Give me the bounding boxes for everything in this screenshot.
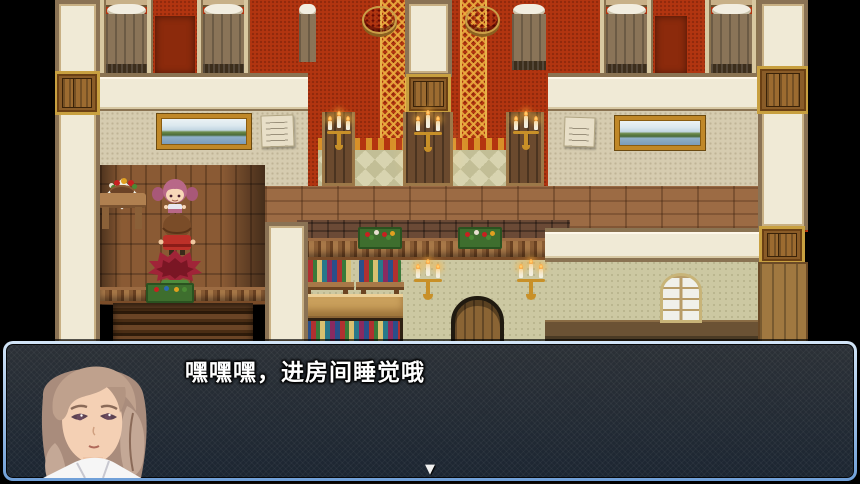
staircase (113, 303, 253, 346)
wall-trim-band (548, 73, 760, 113)
flower-box (458, 227, 502, 249)
flower-table (96, 181, 148, 231)
landscape-painting (157, 114, 251, 149)
center-column-panel (405, 0, 452, 77)
flower-box (146, 283, 194, 303)
dialogue-text: 嘿嘿嘿，进房间睡觉哦 (185, 353, 425, 387)
wall-bookshelf (356, 258, 404, 296)
curtain (106, 14, 147, 65)
arched-door (451, 296, 504, 346)
dialogue-window: 嘿嘿嘿，进房间睡觉哦 ▼ (6, 344, 854, 478)
red-wall-shadow (655, 16, 687, 74)
stairwell-shadow (222, 165, 265, 305)
continue-arrow-icon[interactable]: ▼ (6, 463, 854, 476)
inner-column (265, 222, 308, 346)
wall-sconce (515, 261, 547, 301)
books-row (359, 260, 401, 282)
brick-ledge (297, 220, 570, 238)
left-column (55, 0, 100, 346)
character-pink-haired-girl (150, 176, 200, 218)
round-red-table (362, 6, 397, 34)
balustrade (297, 238, 570, 260)
flower-box (358, 227, 402, 249)
red-wall-shadow (155, 16, 195, 74)
speaker-portrait (15, 351, 168, 478)
curtained-alcove-partial (506, 0, 552, 72)
books-row (306, 321, 400, 341)
shutter-window (54, 71, 100, 115)
right-column-lower (758, 262, 808, 346)
right-column (758, 0, 808, 230)
wall-sconce (413, 261, 443, 301)
candelabra (414, 113, 442, 153)
curtained-alcove (100, 0, 153, 75)
wall-bookshelf (300, 258, 354, 296)
arched-window (660, 273, 702, 323)
candelabra (513, 113, 539, 151)
shutter-window (757, 66, 809, 114)
books-row (303, 260, 351, 282)
character-brown-haired-child (154, 213, 200, 255)
game-screen: 嘿嘿嘿，进房间睡觉哦 ▼ (0, 0, 860, 484)
curtained-alcove (705, 0, 758, 75)
curtained-alcove-partial (297, 0, 318, 72)
round-red-table (465, 6, 500, 34)
curtained-alcove (600, 0, 653, 75)
shutter-window (759, 226, 805, 264)
candelabra (327, 113, 351, 151)
shutter-window (406, 74, 451, 114)
curtained-alcove (197, 0, 250, 75)
landscape-painting (615, 116, 705, 150)
lower-trim-band (545, 228, 760, 262)
table-top (98, 193, 146, 208)
dialogue-box[interactable]: 嘿嘿嘿，进房间睡觉哦 ▼ (3, 341, 857, 481)
wall-trim-band (96, 73, 308, 113)
wall-note (260, 114, 294, 147)
counter (301, 294, 403, 320)
wall-note (563, 116, 595, 147)
